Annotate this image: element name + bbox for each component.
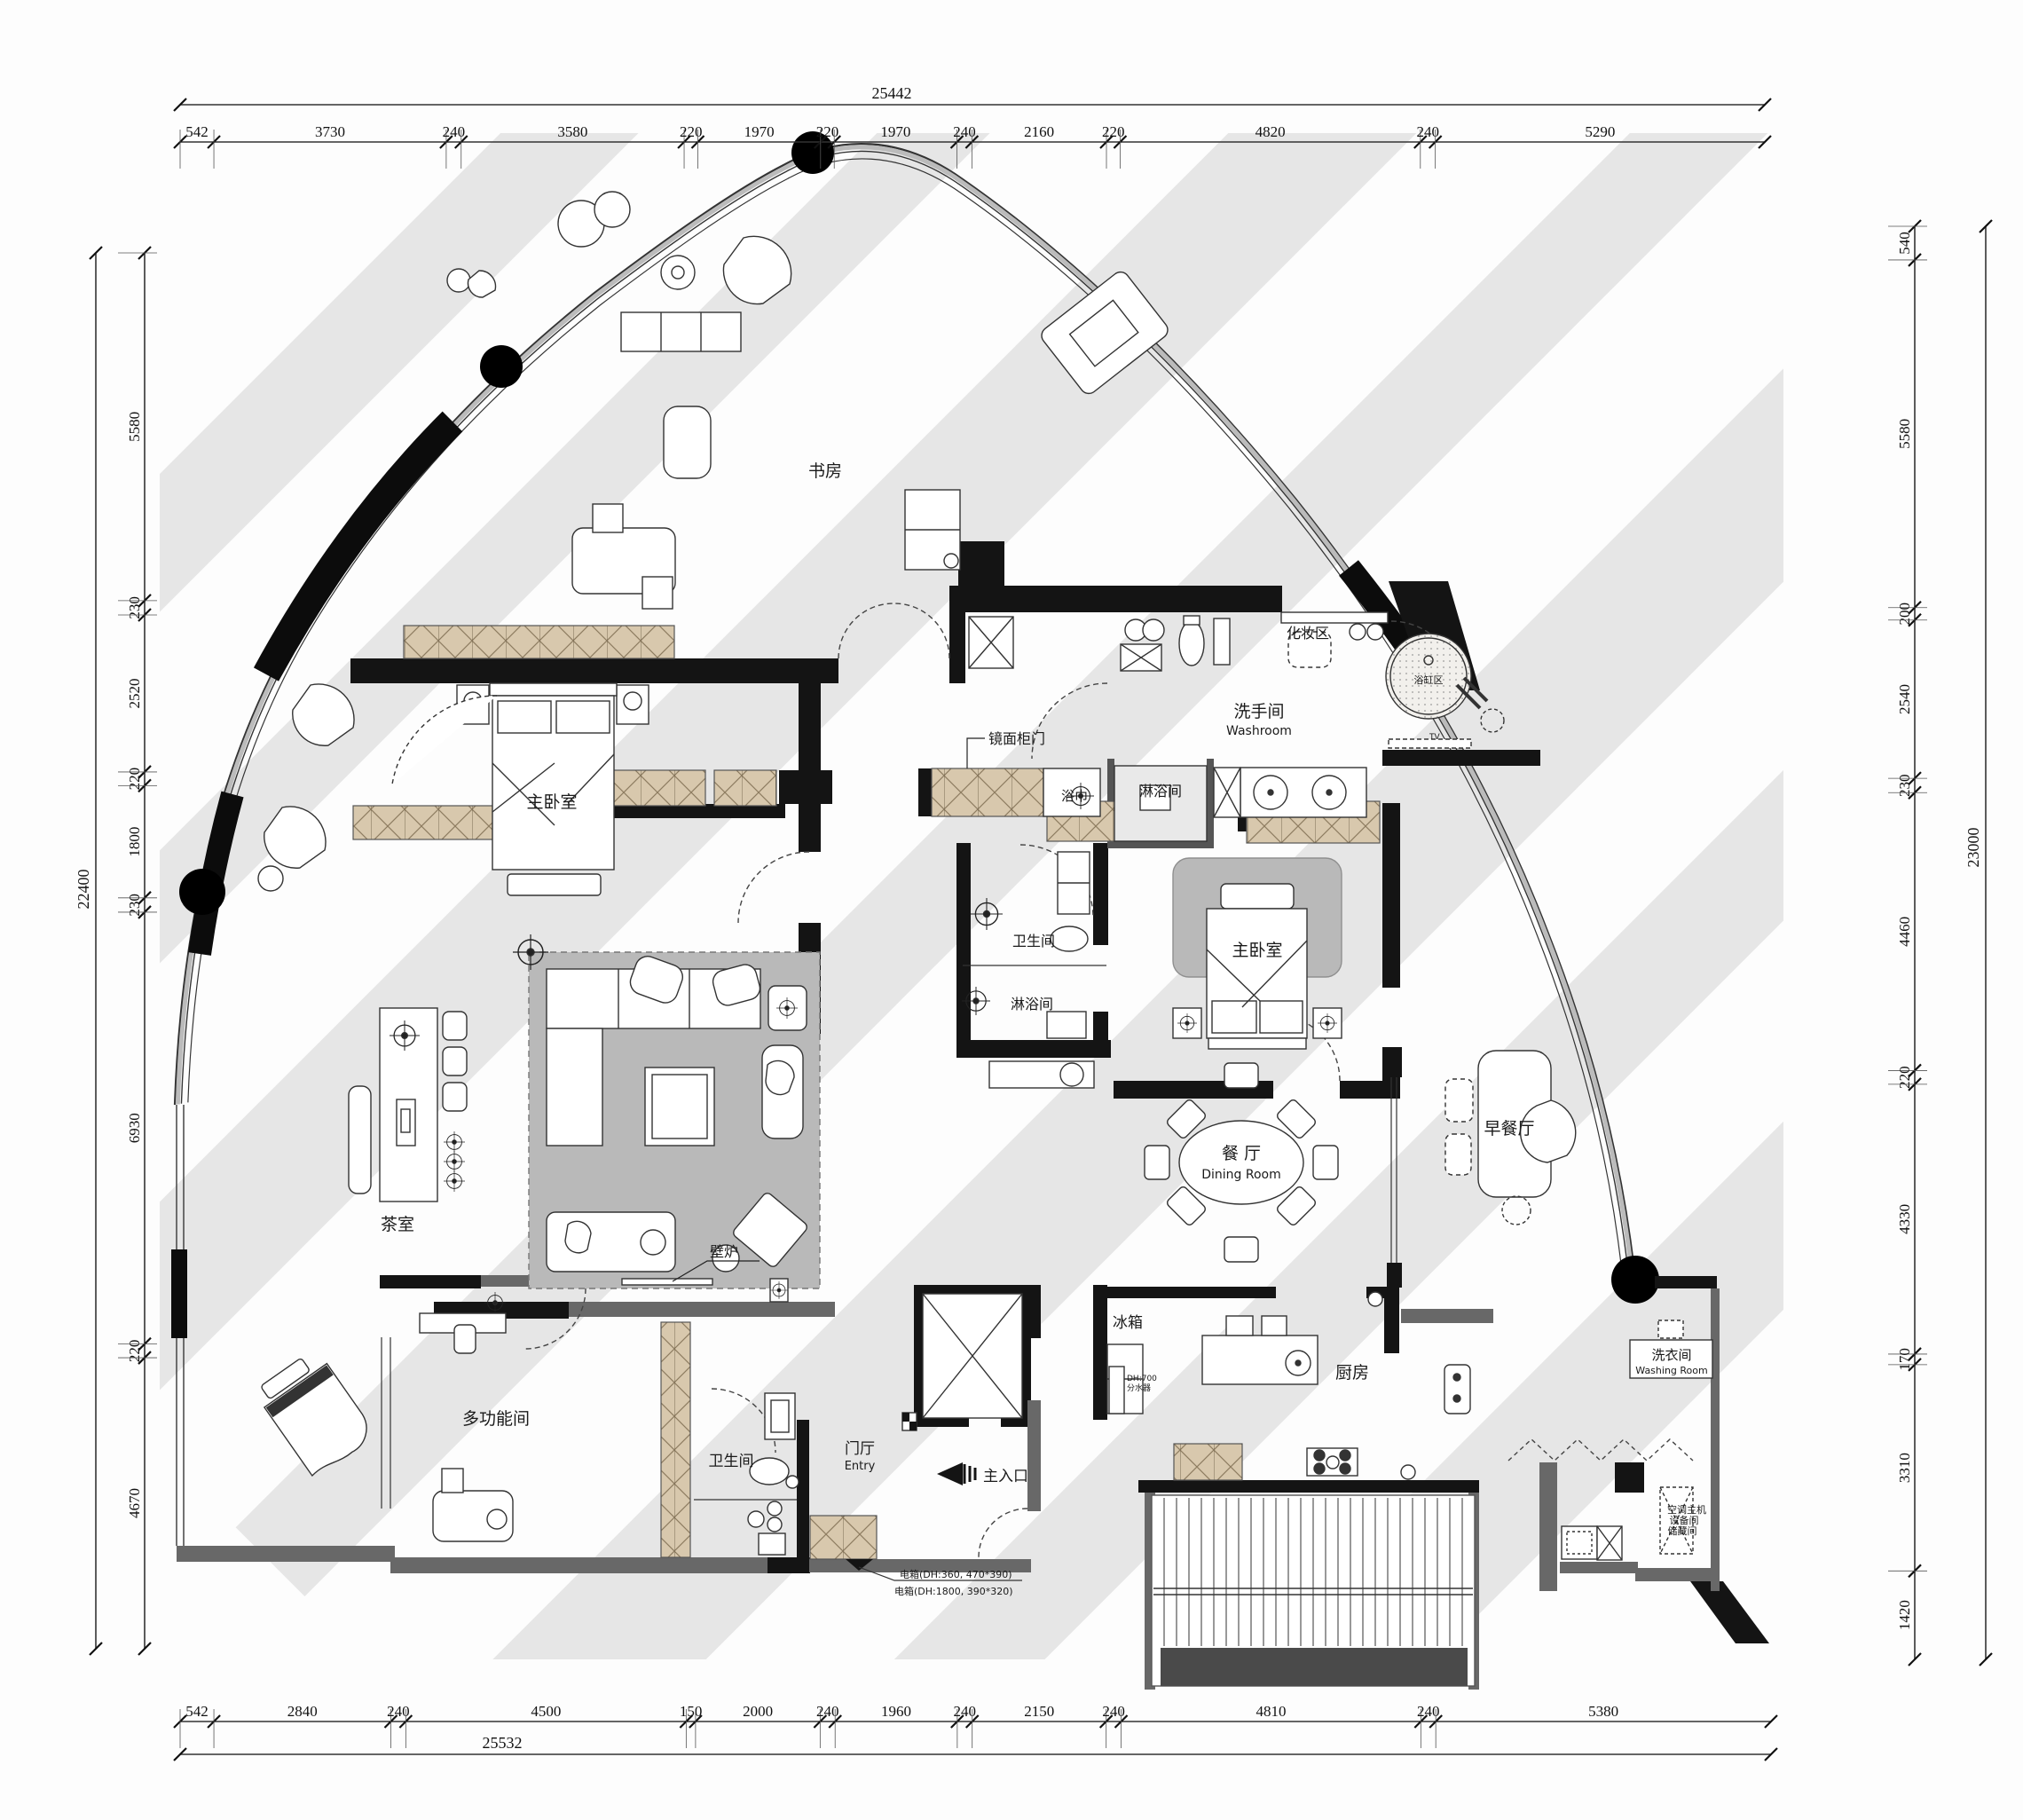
entry-cabinet [810,1516,877,1559]
dim-segment-label: 2540 [1896,684,1913,714]
label-makeup: 化妆区 [1287,625,1329,642]
dim-segment-label: 170 [1896,1348,1913,1371]
dim-segment-label: 230 [126,596,143,619]
label-hvac: 空调主机 [1667,1503,1706,1516]
dim-segment-label: 2520 [126,678,143,708]
label-study: 书房 [808,461,842,481]
fireplace [622,1279,712,1285]
tall-cabinet [661,1322,690,1557]
dim-segment-label: 220 [1102,123,1125,140]
dim-segment-label: 4670 [126,1488,143,1518]
dim-segment-label: 4500 [531,1703,561,1720]
kitchen-counter [1174,1444,1242,1480]
dim-segment-label: 240 [1102,1703,1125,1720]
dim-segment-label: 240 [443,123,466,140]
label-laundry-cn: 洗衣间 [1651,1347,1691,1363]
dim-segment-label: 2840 [287,1703,318,1720]
label-multi: 多功能间 [462,1409,530,1429]
dim-segment-label: 230 [126,894,143,917]
dim-segment-label: 5580 [1896,419,1913,449]
dim-total-label: 25442 [872,84,912,102]
label-dining-en: Dining Room [1201,1168,1281,1182]
dim-segment-label: 5380 [1588,1703,1618,1720]
cabinet-master1-low [353,806,500,839]
label-kitchen: 厨房 [1335,1363,1369,1383]
appliance [1444,1365,1470,1414]
dim-segment-label: 5580 [126,412,143,442]
label-breakfast: 早餐厅 [1484,1119,1534,1138]
label-shower-mid: 淋浴间 [1011,996,1053,1012]
dim-total-label: 23000 [1964,828,1982,868]
dim-segment-label: 1800 [126,827,143,857]
dim-segment-label: 542 [185,1703,209,1720]
label-laundry-en: Washing Room [1635,1365,1707,1376]
label-equipment: 设备间 [1670,1514,1699,1526]
dim-segment-label: 3310 [1896,1453,1913,1483]
label-master2: 主卧室 [1232,941,1282,960]
column-dot [1611,1256,1659,1304]
label-bath-mid: 卫生间 [1012,933,1055,949]
dim-segment-label: 2150 [1024,1703,1054,1720]
label-tv: TV [1429,733,1440,742]
living-furniture [513,934,820,1302]
label-tea: 茶室 [381,1215,414,1234]
label-manifold-2: 分水器 [1127,1383,1151,1393]
floor-plan-canvas: 书房 主卧室 洗手间 Washroom 化妆区 浴缸区 淋浴间 卫生间 淋浴间 … [0,0,2023,1820]
dim-segment-label: 1970 [880,123,910,140]
staircase [1152,1495,1475,1686]
dim-segment-label: 2160 [1024,123,1054,140]
dim-segment-label: 5290 [1585,123,1615,140]
dim-segment-label: 220 [126,1340,143,1363]
dim-segment-label: 230 [1896,774,1913,797]
label-ebox2: 电箱(DH:1800, 390*320) [894,1585,1013,1597]
dim-segment-label: 4810 [1256,1703,1286,1720]
mirror-cabinet-band [932,768,1043,816]
dim-segment-label: 240 [816,1703,839,1720]
label-shower-upper: 淋浴间 [1139,783,1182,800]
toilet [1179,621,1204,666]
dim-segment-label: 2000 [743,1703,773,1720]
dim-segment-label: 220 [816,123,839,140]
label-storage: 储藏间 [1668,1525,1697,1537]
dim-segment-label: 240 [953,123,976,140]
dim-segment-label: 220 [126,768,143,791]
dim-total-label: 22400 [75,870,92,910]
label-fridge: 冰箱 [1113,1314,1143,1332]
lounge-chair [664,406,711,478]
column-dot [179,869,225,915]
column-dot [480,345,523,388]
dim-segment-label: 200 [1896,603,1913,626]
dim-segment-label: 240 [1417,1703,1440,1720]
label-washroom-cn: 洗手间 [1233,702,1284,721]
label-manifold-1: DH:700 [1127,1375,1157,1383]
label-bath-lower: 卫生间 [709,1453,754,1470]
dim-segment-label: 1420 [1896,1600,1913,1630]
dim-total-label: 25532 [483,1734,523,1752]
dim-segment-label: 240 [387,1703,410,1720]
dim-segment-label: 1960 [881,1703,911,1720]
dim-segment-label: 4820 [1256,123,1286,140]
dim-segment-label: 3580 [557,123,587,140]
dim-segment-label: 542 [185,123,209,140]
entrance-arrow [937,1462,963,1485]
label-master1: 主卧室 [526,792,577,812]
dim-segment-label: 1970 [744,123,775,140]
wardrobe-master1 [404,626,674,658]
dim-segment-label: 6930 [126,1113,143,1143]
dim-segment-label: 3730 [315,123,345,140]
label-dining-cn: 餐 厅 [1222,1144,1261,1163]
dim-segment-label: 240 [954,1703,977,1720]
dim-segment-label: 540 [1896,232,1913,255]
dim-segment-label: 4460 [1896,917,1913,947]
label-washroom-en: Washroom [1226,724,1292,738]
label-entrance: 主入口 [983,1468,1028,1485]
label-bathtub: 浴缸区 [1414,674,1444,686]
dim-segment-label: 220 [680,123,703,140]
dim-segment-label: 4330 [1896,1204,1913,1234]
label-ebox1: 电箱(DH:360, 470*390) [900,1568,1012,1580]
label-foyer-en: Entry [845,1460,876,1473]
label-mirror-cabinet: 镜面柜门 [988,730,1045,747]
dim-segment-label: 220 [1896,1066,1913,1089]
corridor-cabinet [714,770,776,806]
dim-segment-label: 240 [1416,123,1439,140]
label-foyer-cn: 门厅 [845,1440,875,1458]
label-fireplace: 壁炉 [710,1243,738,1260]
floor-plan-drawing: 书房 主卧室 洗手间 Washroom 化妆区 浴缸区 淋浴间 卫生间 淋浴间 … [0,0,2023,1820]
